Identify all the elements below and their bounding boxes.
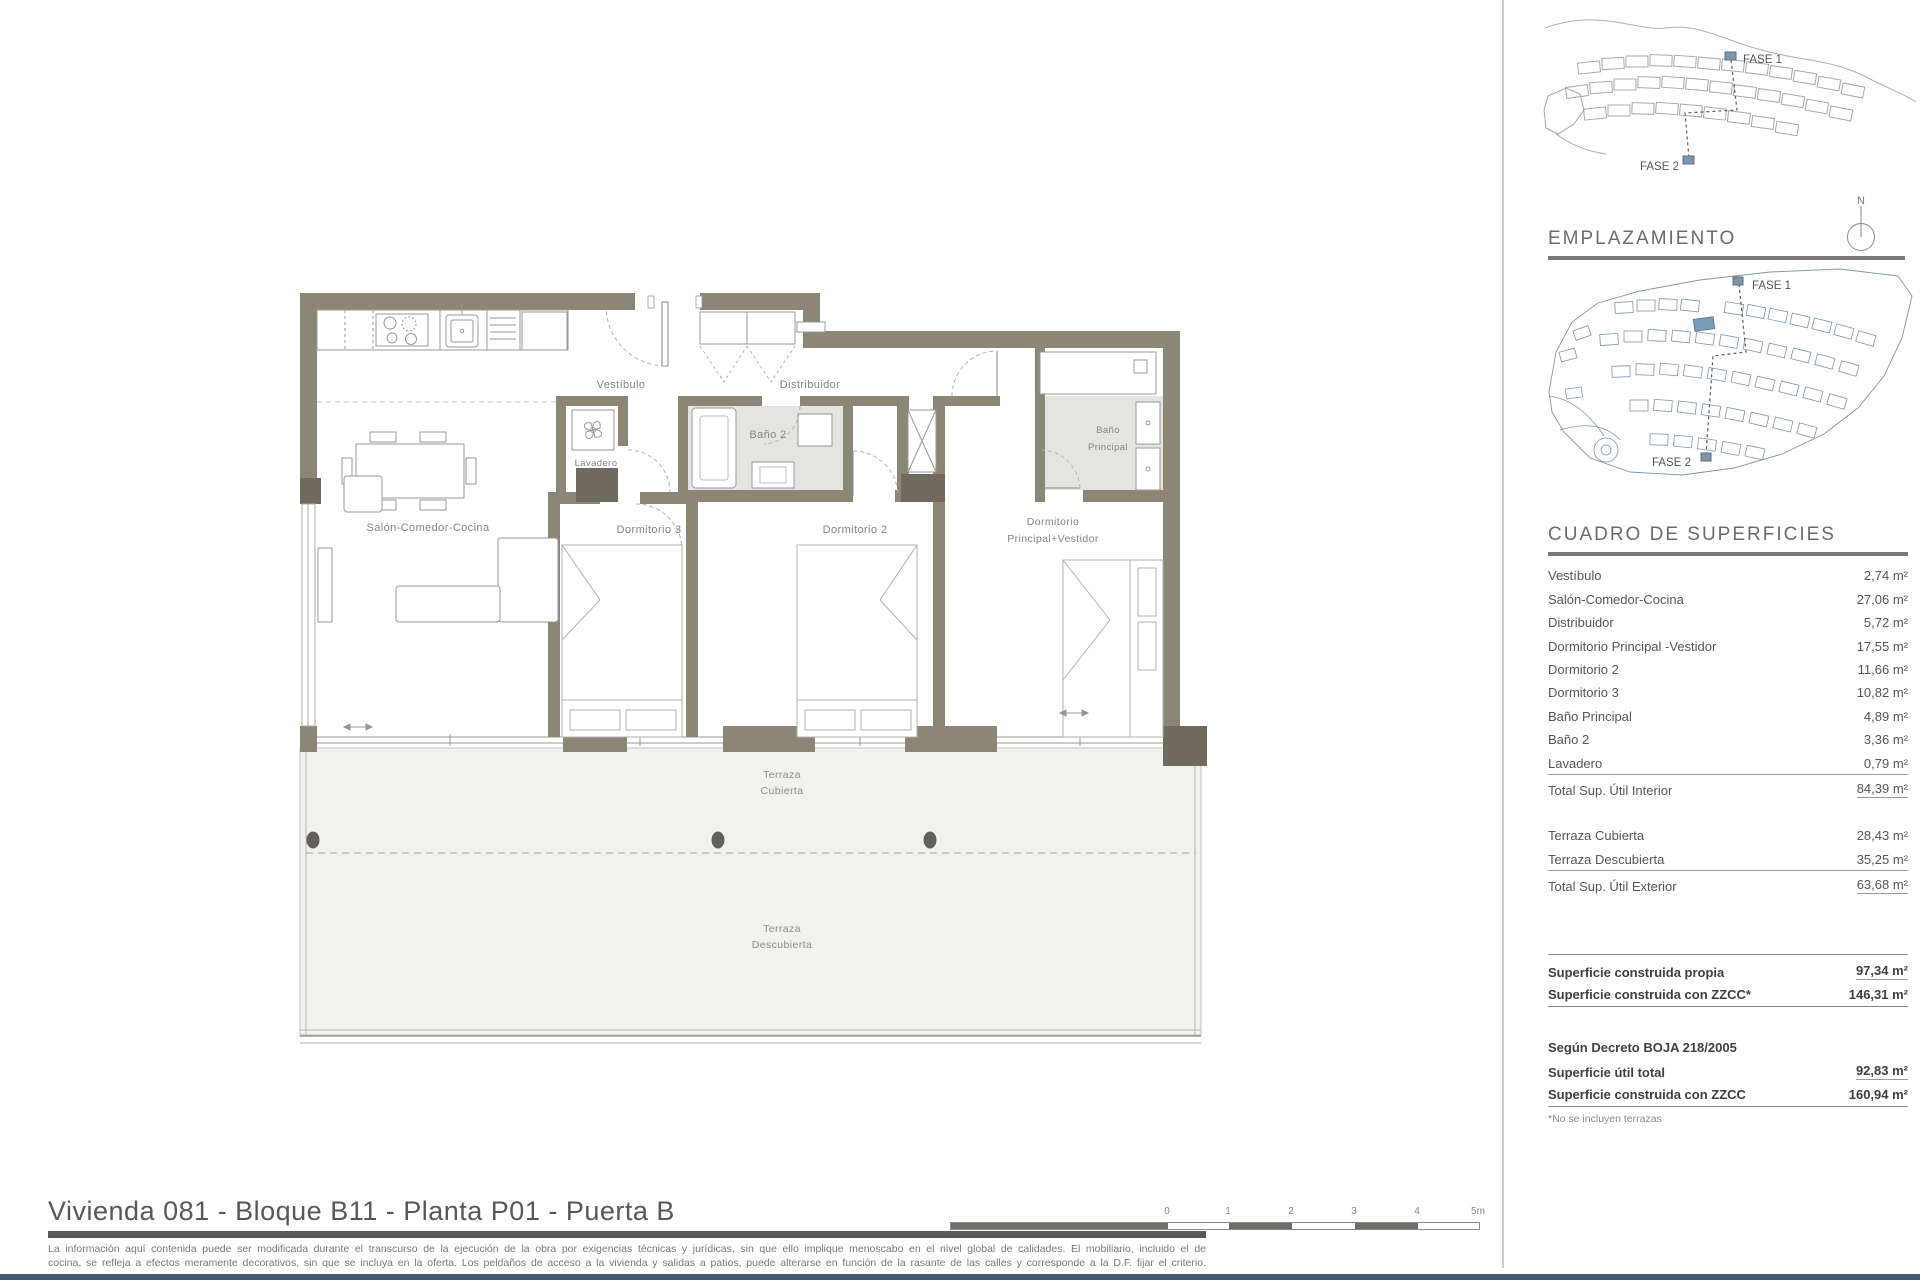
map-fase2-label: FASE 2 (1652, 457, 1691, 469)
terrace-column (924, 832, 937, 849)
label-terr-des-1: Terraza (763, 923, 801, 935)
map-fase1-label: FASE 1 (1752, 280, 1791, 292)
window (302, 504, 315, 726)
scale-tick-label: 3 (1351, 1206, 1357, 1217)
table-total-row: Total Sup. Útil Exterior63,68 m² (1548, 870, 1908, 894)
disclaimer-line: La información aquí contenida puede ser … (48, 1243, 1206, 1255)
label-terr-cub-1: Terraza (763, 769, 801, 781)
scale-tick-label: 2 (1288, 1206, 1294, 1217)
header-rule (1548, 552, 1908, 556)
map-fase1-marker (1733, 277, 1743, 285)
bed-dorm2 (797, 545, 917, 737)
label-terr-des-2: Descubierta (752, 939, 812, 951)
label-dorm2: Dormitorio 2 (823, 524, 888, 536)
contour-line (1545, 20, 1916, 102)
label-terr-cub-2: Cubierta (761, 785, 804, 797)
label-dormp-1: Dormitorio (1027, 516, 1079, 528)
label-banop-1: Baño (1096, 425, 1120, 436)
phase-markers: FASE 1 FASE 2 (1640, 52, 1782, 173)
table-total-row: Total Sup. Útil Interior84,39 m² (1548, 774, 1908, 798)
table-row: Dormitorio 310,82 m² (1548, 677, 1908, 700)
bathroom-main (1040, 352, 1163, 490)
fase2-marker (1683, 156, 1694, 164)
built-area-block: Superficie construida propia97,34 m² Sup… (1548, 954, 1908, 1007)
emplazamiento-map: FASE 1 FASE 2 (1535, 258, 1920, 526)
scale-tick-label: 1 (1225, 1206, 1231, 1217)
table-row: Superficie útil total92,83 m² (1548, 1057, 1908, 1080)
table-row: Superficie construida con ZZCC160,94 m² (1548, 1080, 1908, 1103)
label-vestibulo: Vestíbulo (597, 379, 646, 391)
table-row: Vestíbulo2,74 m² (1548, 560, 1908, 583)
surfaces-title: CUADRO DE SUPERFICIES (1548, 524, 1836, 545)
table-row: Salón-Comedor-Cocina27,06 m² (1548, 583, 1908, 606)
decree-block: Según Decreto BOJA 218/2005 Superficie ú… (1548, 1031, 1908, 1107)
plan-sheet: Vestíbulo Distribuidor Baño 2 Lavadero B… (0, 0, 1920, 1280)
label-banop-2: Principal (1088, 442, 1128, 453)
scale-tick-label: 0 (1164, 1206, 1170, 1217)
label-distribuidor: Distribuidor (780, 379, 840, 391)
table-row: Lavadero0,79 m² (1548, 747, 1908, 770)
scale-tick-label: 4 (1414, 1206, 1420, 1217)
label-salon: Salón-Comedor-Cocina (367, 522, 490, 534)
wardrobe (908, 410, 936, 472)
table-row: Superficie construida con ZZCC*146,31 m² (1548, 980, 1908, 1003)
fridge (522, 312, 567, 350)
scale-bar-segments (950, 1222, 1480, 1230)
cooktop-icon (376, 314, 428, 346)
phase-sketch: FASE 1 FASE 2 N (1535, 0, 1920, 258)
fase2-label: FASE 2 (1640, 161, 1679, 173)
table-row: Dormitorio 211,66 m² (1548, 654, 1908, 677)
terrace-column (307, 832, 320, 849)
table-row: Baño Principal4,89 m² (1548, 700, 1908, 723)
sketch-buildings (1544, 55, 1865, 154)
bed-main (1063, 560, 1163, 737)
label-dormp-2: Principal+Vestidor (1007, 533, 1099, 545)
svg-text:N: N (1857, 195, 1865, 207)
fase1-marker (1725, 52, 1736, 60)
map-fase2-marker (1701, 453, 1711, 461)
bathroom2 (688, 406, 843, 490)
bottom-accent-line (0, 1274, 1920, 1280)
label-dorm3: Dormitorio 3 (617, 524, 682, 536)
table-row: Distribuidor5,72 m² (1548, 607, 1908, 630)
scale-tick-label: 5m (1471, 1206, 1485, 1217)
table-footnote: *No se incluyen terrazas (1548, 1113, 1908, 1125)
table-row: Terraza Cubierta28,43 m² (1548, 820, 1908, 843)
decree-heading: Según Decreto BOJA 218/2005 (1548, 1031, 1908, 1055)
table-row: Dormitorio Principal -Vestidor17,55 m² (1548, 630, 1908, 653)
terrace-column (712, 832, 725, 849)
label-bano2: Baño 2 (749, 429, 786, 441)
highlighted-unit (1693, 317, 1714, 332)
disclaimer-line: cocina, se refleja a efectos meramente d… (48, 1257, 1206, 1269)
title-underline (48, 1231, 1206, 1238)
sidebar-divider (1502, 0, 1504, 1268)
floor-plan: Vestíbulo Distribuidor Baño 2 Lavadero B… (0, 0, 1500, 1190)
table-row: Terraza Descubierta35,25 m² (1548, 843, 1908, 866)
surfaces-header: CUADRO DE SUPERFICIES (1548, 524, 1908, 556)
emplazamiento-title: EMPLAZAMIENTO (1548, 228, 1736, 249)
table-row: Baño 23,36 m² (1548, 724, 1908, 747)
exterior-block: Terraza Cubierta28,43 m² Terraza Descubi… (1548, 820, 1908, 894)
emplazamiento-header: EMPLAZAMIENTO (1548, 228, 1905, 260)
label-lavadero: Lavadero (575, 458, 618, 469)
kitchen-counter (317, 303, 568, 402)
surfaces-table: Vestíbulo2,74 m² Salón-Comedor-Cocina27,… (1548, 560, 1908, 1125)
bed-dorm3 (562, 545, 682, 737)
terrace (300, 748, 1201, 1043)
table-row: Superficie construida propia97,34 m² (1548, 957, 1908, 980)
fase1-label: FASE 1 (1743, 54, 1782, 66)
